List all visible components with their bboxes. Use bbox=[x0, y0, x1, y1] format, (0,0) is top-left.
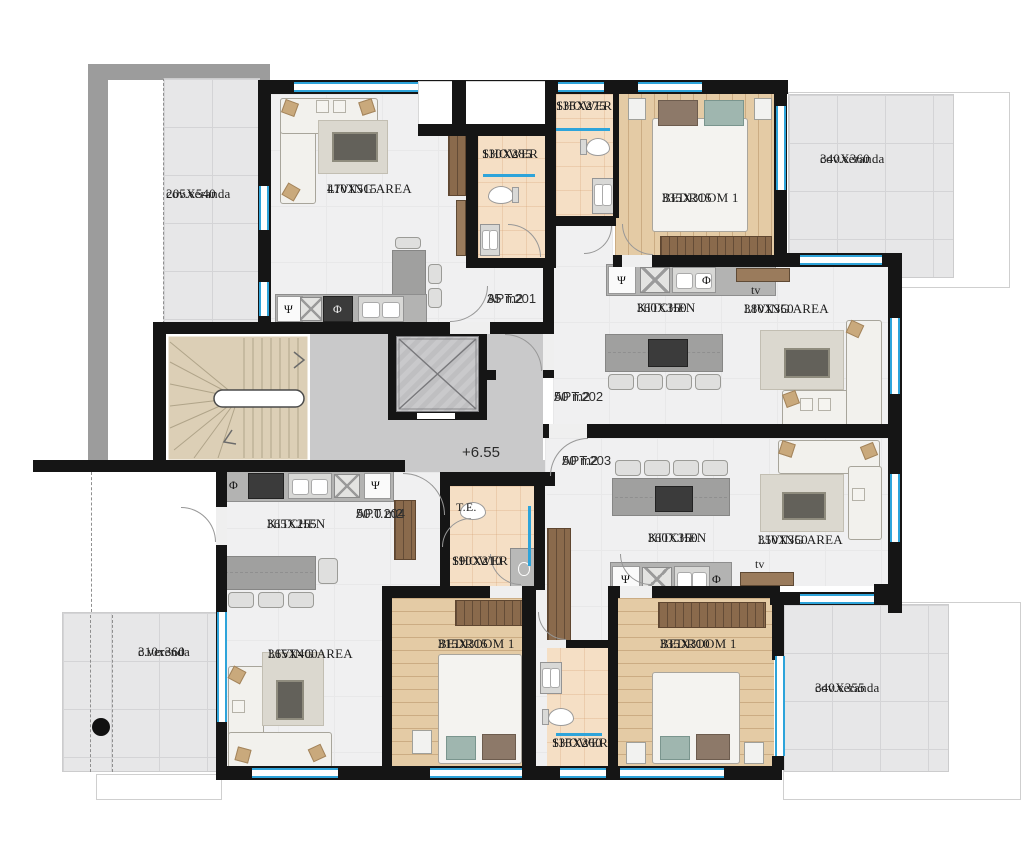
sink-204 bbox=[288, 473, 332, 499]
wall bbox=[772, 598, 784, 660]
chair-204-1 bbox=[228, 592, 254, 608]
island-cooktop-203 bbox=[655, 486, 693, 512]
room-dims: 335X315 bbox=[662, 190, 712, 206]
toilet-tank-203 bbox=[542, 709, 549, 725]
room-dims: 130X285 bbox=[482, 146, 532, 162]
door-gap-apt203 bbox=[549, 424, 587, 438]
bed-204-pillow-1 bbox=[446, 736, 476, 760]
room-dims: 340X360 bbox=[820, 151, 870, 167]
room-dims: 470X515 bbox=[327, 181, 377, 197]
bed-203-pillow-2 bbox=[696, 734, 730, 760]
wall bbox=[543, 424, 902, 438]
chair-203-3 bbox=[673, 460, 699, 476]
chair-204-4 bbox=[318, 558, 338, 584]
room-dims: 360X350 bbox=[637, 300, 687, 316]
window bbox=[776, 106, 786, 190]
chair-204-3 bbox=[288, 592, 314, 608]
room-dims: 135X275 bbox=[556, 98, 606, 114]
wall bbox=[480, 370, 496, 380]
phi-symbol-201: Φ bbox=[333, 303, 342, 315]
window bbox=[259, 282, 269, 316]
roof-band-left bbox=[88, 64, 108, 462]
nightstand-203-l bbox=[626, 742, 646, 764]
door-gap-shower-203 bbox=[536, 640, 566, 648]
wall bbox=[545, 80, 556, 266]
cooktop-201 bbox=[300, 297, 322, 321]
sofa-201-pillow-3 bbox=[333, 100, 346, 113]
phi-symbol-202: Φ bbox=[702, 274, 711, 286]
veranda-bl-dash-2 bbox=[112, 615, 113, 772]
shower-vent-line bbox=[483, 174, 535, 177]
elevator-door bbox=[417, 413, 455, 419]
nightstand-204 bbox=[412, 730, 432, 754]
entry-notch bbox=[418, 81, 552, 125]
tv-label-203: tv bbox=[755, 558, 764, 570]
window bbox=[294, 82, 418, 92]
floor-plan: cov.veranda 205X540 LIVING AREA 470X515 … bbox=[0, 0, 1024, 854]
room-dims: 135X260 bbox=[552, 735, 602, 751]
room-dims: 365X400 bbox=[268, 646, 318, 662]
apt-area: 35 m2 bbox=[487, 291, 523, 308]
chair-203-4 bbox=[702, 460, 728, 476]
room-dims: 315X315 bbox=[438, 636, 488, 652]
door-gap-bedroom-203 bbox=[620, 586, 652, 598]
sofa-203-pillow-3 bbox=[852, 488, 865, 501]
door-gap-bedroom-204 bbox=[490, 586, 522, 598]
coffee-table-203 bbox=[782, 492, 826, 520]
window bbox=[890, 474, 900, 542]
nightstand-203-r bbox=[744, 742, 764, 764]
terrace-dash bbox=[91, 472, 92, 612]
coffee-table-202 bbox=[784, 348, 830, 378]
tv-cabinet-203 bbox=[740, 572, 794, 586]
wall bbox=[33, 460, 155, 472]
staircase-drawing bbox=[166, 334, 310, 462]
oven-204 bbox=[248, 473, 284, 499]
wall bbox=[556, 216, 616, 226]
psi-symbol-202: Ψ bbox=[617, 274, 626, 286]
shelf-201 bbox=[456, 200, 466, 256]
te-pipe-line bbox=[528, 506, 531, 566]
window bbox=[558, 82, 604, 92]
veranda-outline-bl bbox=[96, 774, 222, 800]
tv-label-202: tv bbox=[751, 284, 760, 296]
shower-vent-line bbox=[556, 128, 610, 131]
floor-corridor-tongue bbox=[405, 460, 545, 472]
room-dims: 360X350 bbox=[648, 530, 698, 546]
door-gap-apt202 bbox=[543, 334, 554, 370]
bed-202-pillow-1 bbox=[658, 100, 698, 126]
island-204-dash bbox=[225, 572, 313, 573]
wall bbox=[440, 472, 555, 486]
window bbox=[560, 768, 606, 778]
room-dims: 350X350 bbox=[758, 532, 808, 548]
door-gap-bedroom-202 bbox=[622, 255, 652, 267]
chair-204-2 bbox=[258, 592, 284, 608]
toilet-203 bbox=[548, 708, 574, 726]
window bbox=[252, 768, 338, 778]
wall bbox=[382, 586, 392, 770]
dresser-203 bbox=[658, 602, 766, 628]
floor-veranda-tl bbox=[163, 78, 260, 334]
floor-veranda-bl bbox=[62, 612, 222, 772]
bed-202-pillow-2 bbox=[704, 100, 744, 126]
wall bbox=[153, 460, 405, 472]
room-dims: 205X540 bbox=[166, 186, 216, 202]
psi-symbol-204: Ψ bbox=[371, 479, 380, 491]
wall bbox=[874, 584, 902, 596]
window bbox=[217, 612, 227, 722]
basin-202 bbox=[592, 178, 614, 214]
room-dims: 335X310 bbox=[660, 636, 710, 652]
wall bbox=[522, 586, 536, 768]
phi-symbol-203: Φ bbox=[712, 573, 721, 585]
chair-203-1 bbox=[615, 460, 641, 476]
psi-symbol-201: Ψ bbox=[284, 303, 293, 315]
window bbox=[430, 768, 522, 778]
basin-201 bbox=[480, 224, 500, 256]
sink-201 bbox=[358, 296, 404, 322]
floor-veranda-tr bbox=[788, 94, 954, 278]
wall bbox=[418, 124, 555, 136]
wall bbox=[613, 94, 619, 218]
window bbox=[800, 594, 874, 604]
nightstand-202-l bbox=[628, 98, 646, 120]
toilet-202 bbox=[586, 138, 610, 156]
kitchen-island-201 bbox=[392, 250, 426, 296]
room-dims: 310x360 bbox=[138, 644, 185, 660]
chair-203-2 bbox=[644, 460, 670, 476]
island-cooktop-202 bbox=[648, 339, 688, 367]
tv-unit-201 bbox=[448, 130, 466, 196]
cooktop-202 bbox=[640, 267, 670, 293]
psi-symbol-203: Ψ bbox=[621, 573, 630, 585]
basin-203 bbox=[540, 662, 562, 694]
column-dot bbox=[92, 718, 110, 736]
coffee-table-201 bbox=[332, 132, 378, 162]
kitchen-island-204 bbox=[222, 556, 316, 590]
window bbox=[638, 82, 702, 92]
door-gap-terrace-204 bbox=[216, 507, 227, 545]
bed-204-pillow-2 bbox=[482, 734, 516, 760]
window bbox=[775, 656, 785, 756]
room-name: T.E. bbox=[456, 500, 477, 515]
toilet-tank-202 bbox=[580, 139, 587, 155]
veranda-bl-dash-1 bbox=[90, 615, 91, 772]
chair-202-3 bbox=[666, 374, 692, 390]
elevator-car bbox=[396, 336, 479, 412]
apt-area: 50 m2 bbox=[562, 453, 598, 470]
level-label: +6.55 bbox=[462, 444, 500, 461]
wall bbox=[608, 586, 618, 768]
sofa-202-back bbox=[846, 320, 882, 428]
window bbox=[620, 768, 724, 778]
room-dims: 190X210 bbox=[452, 553, 502, 569]
apt-area: 50.0 m2 bbox=[356, 506, 403, 523]
wall bbox=[534, 486, 545, 590]
window bbox=[800, 255, 882, 265]
window bbox=[259, 186, 269, 230]
wall bbox=[452, 80, 466, 125]
door-gap-apt201 bbox=[450, 322, 490, 334]
stool-201-r1 bbox=[428, 264, 442, 284]
bed-202 bbox=[652, 118, 748, 232]
sofa-202-pillow-3 bbox=[818, 398, 831, 411]
apt-area: 50 m2 bbox=[554, 389, 590, 406]
sofa-203-back bbox=[848, 466, 882, 540]
door-arc-terrace-204 bbox=[181, 507, 216, 542]
chair-202-1 bbox=[608, 374, 634, 390]
chair-202-2 bbox=[637, 374, 663, 390]
chair-202-4 bbox=[695, 374, 721, 390]
toilet-201 bbox=[488, 186, 514, 204]
window bbox=[890, 318, 900, 394]
stool-201-r2 bbox=[428, 288, 442, 308]
sofa-204-pillow-2 bbox=[232, 700, 245, 713]
bed-203-pillow-1 bbox=[660, 736, 690, 760]
room-dims: 340X355 bbox=[815, 680, 865, 696]
phi-symbol-204: Φ bbox=[229, 479, 238, 491]
room-dims: 380X350 bbox=[744, 301, 794, 317]
nightstand-202-r bbox=[754, 98, 772, 120]
wall bbox=[153, 326, 166, 472]
stool-201-top bbox=[395, 237, 421, 249]
room-dims: 365X255 bbox=[267, 516, 317, 532]
toilet-tank-201 bbox=[512, 187, 519, 203]
sofa-202-pillow-2 bbox=[800, 398, 813, 411]
tv-cabinet-202 bbox=[736, 268, 790, 282]
sofa-201-pillow-2 bbox=[316, 100, 329, 113]
coffee-table-204 bbox=[276, 680, 304, 720]
wall bbox=[466, 128, 478, 262]
staircase bbox=[166, 334, 310, 462]
cooktop-204 bbox=[334, 474, 360, 498]
